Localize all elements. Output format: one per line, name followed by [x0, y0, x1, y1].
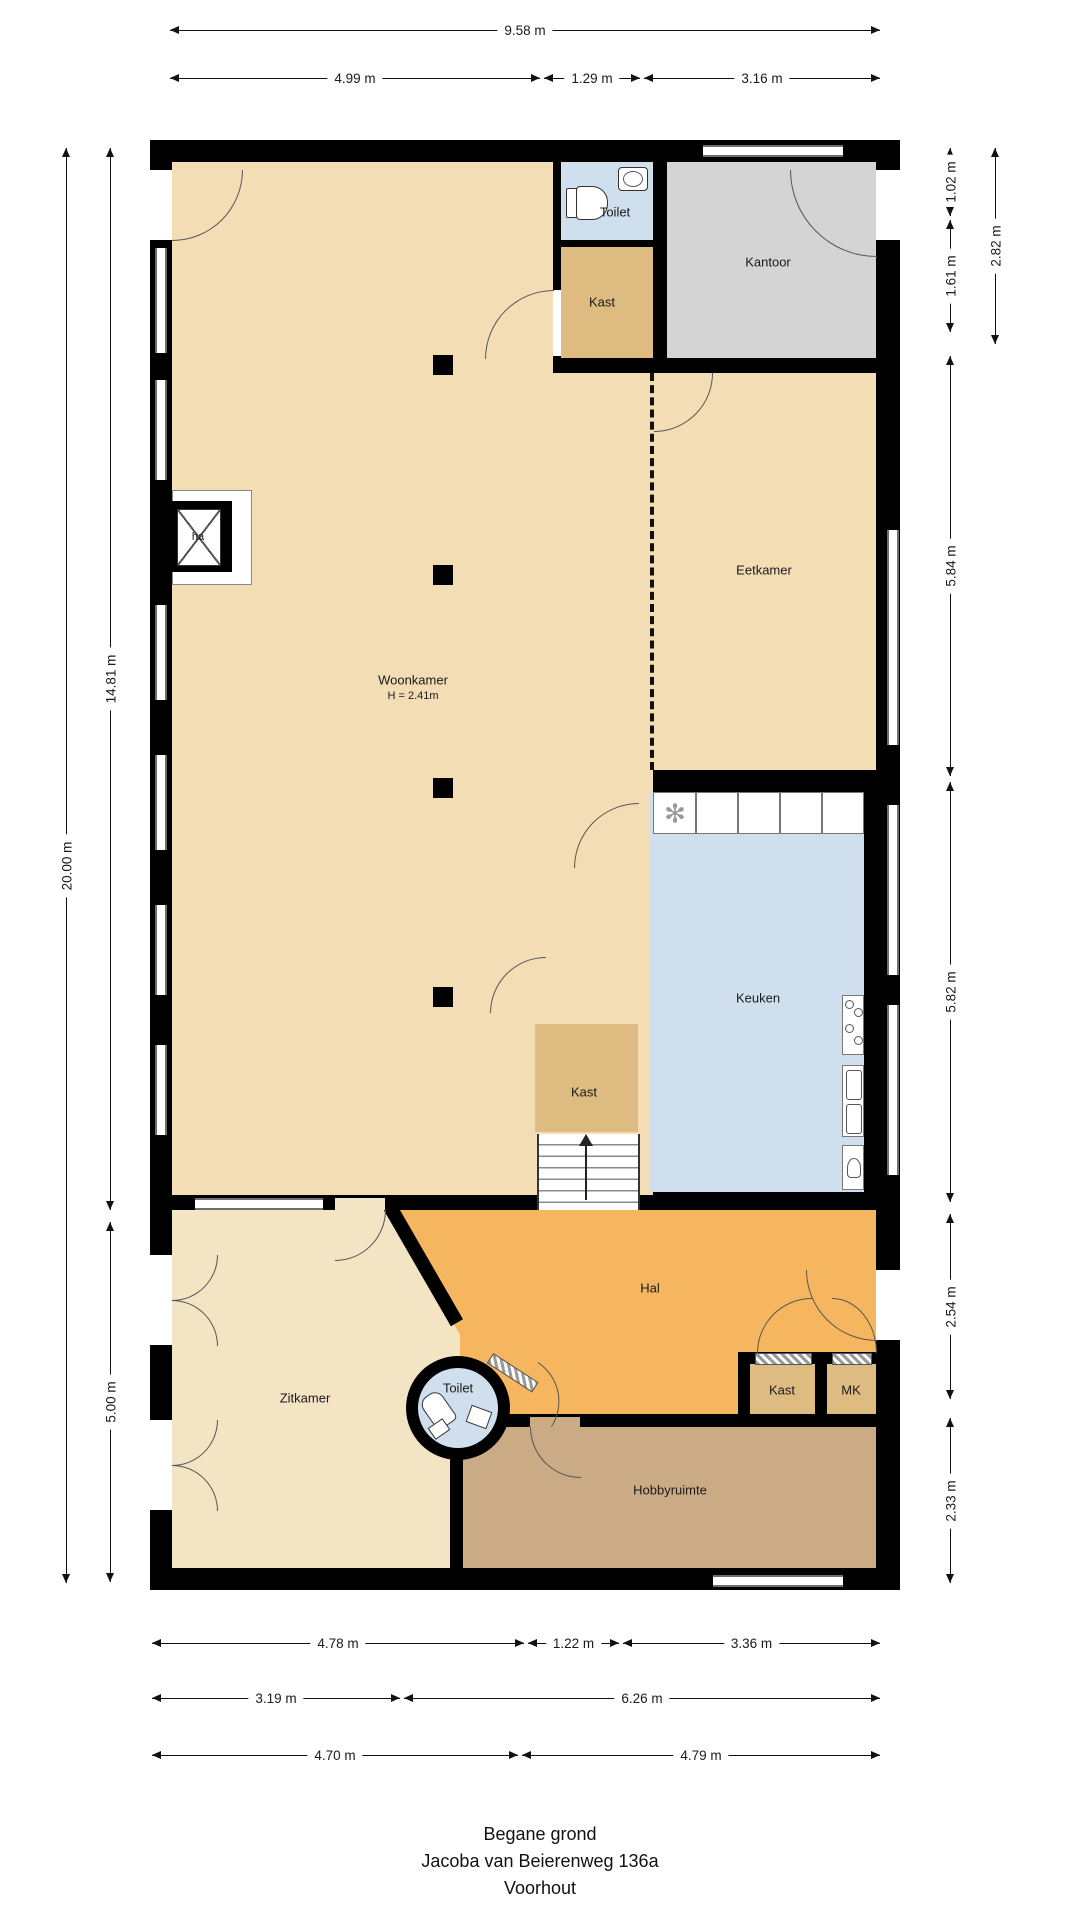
sink-basin-2: [846, 1104, 862, 1134]
dim-top-seg-1-label: 4.99 m: [327, 71, 382, 86]
dim-bottom3-seg-1-label: 4.70 m: [307, 1748, 362, 1763]
dim-right-seg-5-label: 2.54 m: [944, 1279, 959, 1334]
window-right-keuken-2: [887, 1005, 899, 1175]
dim-right-seg-1: 1.02 m: [950, 148, 951, 216]
stairs-direction-line: [585, 1142, 587, 1200]
door-gap-topleft: [150, 170, 172, 240]
window-right-eetkamer: [887, 530, 899, 745]
dim-top-total: 9.58 m: [170, 30, 880, 31]
sink-basin-1: [846, 1070, 862, 1100]
hob-burner-2: [854, 1008, 863, 1017]
floorplan: ha ✻: [150, 140, 900, 1590]
dim-bottom1-seg-1-label: 4.78 m: [310, 1636, 365, 1651]
stairs-up-arrow-icon: [579, 1134, 593, 1146]
dim-right-seg-4-label: 5.82 m: [944, 964, 959, 1019]
fireplace-label: ha: [192, 531, 204, 543]
window-left-4: [155, 755, 167, 850]
dim-bottom1-seg-3: 3.36 m: [623, 1643, 880, 1644]
label-mk: MK: [841, 1383, 861, 1398]
window-left-2: [155, 380, 167, 480]
dim-bottom1-seg-2-label: 1.22 m: [546, 1636, 601, 1651]
counter-cell-5: [822, 792, 864, 834]
label-zitkamer: Zitkamer: [280, 1391, 331, 1406]
window-left-1: [155, 248, 167, 353]
door-gap-kast-midden: [545, 1012, 595, 1024]
door-gap-zit-left-1: [150, 1255, 172, 1345]
label-keuken: Keuken: [736, 991, 780, 1006]
label-kast-boven: Kast: [589, 295, 615, 310]
dim-top-seg-3: 3.16 m: [644, 78, 880, 79]
kitchen-sink: [842, 1065, 864, 1137]
door-gap-zitkamer: [335, 1198, 385, 1210]
dim-bottom1-seg-3-label: 3.36 m: [724, 1636, 779, 1651]
opening-mk: [832, 1353, 872, 1365]
label-toilet-rond: Toilet: [443, 1381, 473, 1396]
room-kast-midden: [535, 1024, 638, 1132]
window-hobby-bottom: [713, 1575, 843, 1587]
dim-bottom1-seg-2: 1.22 m: [528, 1643, 619, 1644]
dim-right-seg-1-label: 1.02 m: [944, 154, 959, 209]
opening-kast-hal: [755, 1353, 812, 1365]
dim-right-seg-3-label: 5.84 m: [944, 538, 959, 593]
dim-right-seg-6-label: 2.33 m: [944, 1473, 959, 1528]
door-gap-kast-boven: [553, 290, 561, 356]
dim-left-outer-label: 20.00 m: [60, 834, 75, 897]
label-kantoor: Kantoor: [745, 255, 791, 270]
dim-left-lower-label: 5.00 m: [104, 1374, 119, 1429]
dim-left-outer: 20.00 m: [66, 148, 67, 1583]
dim-top-total-label: 9.58 m: [497, 23, 552, 38]
dim-top-seg-2-label: 1.29 m: [564, 71, 619, 86]
window-left-3: [155, 605, 167, 700]
dim-top-seg-3-label: 3.16 m: [734, 71, 789, 86]
window-zitkamer-top: [195, 1198, 323, 1210]
dim-left-upper: 14.81 m: [110, 148, 111, 1210]
toilet-boven-sink-basin: [623, 171, 643, 187]
label-hal: Hal: [640, 1281, 660, 1296]
dim-right-seg-2-label: 1.61 m: [944, 248, 959, 303]
dim-bottom2-seg-1-label: 3.19 m: [248, 1691, 303, 1706]
label-woonkamer: Woonkamer: [378, 673, 448, 688]
dim-left-upper-label: 14.81 m: [104, 648, 119, 711]
dim-right-seg-6: 2.33 m: [950, 1418, 951, 1583]
label-kast-hal: Kast: [769, 1383, 795, 1398]
hob-burner-1: [845, 1000, 854, 1009]
appliance-detail: [847, 1158, 861, 1178]
dim-right-outer-upper-label: 2.82 m: [989, 218, 1004, 273]
door-gap-hal-front: [876, 1270, 900, 1340]
plan-subtitle-address: Jacoba van Beierenweg 136a: [0, 1851, 1080, 1872]
dim-bottom1-seg-1: 4.78 m: [152, 1643, 524, 1644]
kitchen-appliance: [842, 1145, 864, 1190]
dim-bottom3-seg-2-label: 4.79 m: [673, 1748, 728, 1763]
room-hobbyruimte: [463, 1427, 876, 1568]
dim-bottom2-seg-1: 3.19 m: [152, 1698, 400, 1699]
plan-subtitle-city: Voorhout: [0, 1878, 1080, 1899]
window-left-5: [155, 905, 167, 995]
dashed-divider: [650, 373, 654, 770]
window-right-keuken-1: [887, 805, 899, 975]
door-gap-keuken: [638, 803, 650, 865]
hob-burner-3: [845, 1024, 854, 1033]
dim-left-lower: 5.00 m: [110, 1222, 111, 1582]
dim-right-seg-4: 5.82 m: [950, 782, 951, 1202]
counter-cell-2: [696, 792, 738, 834]
label-eetkamer: Eetkamer: [736, 563, 792, 578]
label-toilet-boven: Toilet: [600, 205, 630, 220]
dim-bottom3-seg-1: 4.70 m: [152, 1755, 518, 1756]
column-4: [433, 987, 453, 1007]
window-kantoor-top: [703, 145, 843, 157]
counter-cell-4: [780, 792, 822, 834]
dim-bottom3-seg-2: 4.79 m: [522, 1755, 880, 1756]
window-left-6: [155, 1045, 167, 1135]
dim-bottom2-seg-2-label: 6.26 m: [614, 1691, 669, 1706]
counter-cell-hood: ✻: [653, 792, 696, 834]
dim-right-outer-upper: 2.82 m: [995, 148, 996, 344]
dim-right-seg-2: 1.61 m: [950, 220, 951, 332]
dim-top-seg-1: 4.99 m: [170, 78, 540, 79]
plan-title: Begane grond: [0, 1824, 1080, 1845]
label-kast-midden: Kast: [571, 1085, 597, 1100]
extractor-fan-icon: ✻: [664, 799, 686, 830]
column-1: [433, 355, 453, 375]
dim-top-seg-2: 1.29 m: [544, 78, 640, 79]
door-gap-zit-left-2: [150, 1420, 172, 1510]
column-2: [433, 565, 453, 585]
door-gap-kantoor: [876, 170, 900, 240]
dim-right-seg-3: 5.84 m: [950, 356, 951, 776]
floorplan-page: ha ✻: [0, 0, 1080, 1920]
counter-cell-3: [738, 792, 780, 834]
dim-right-seg-5: 2.54 m: [950, 1214, 951, 1399]
dim-bottom2-seg-2: 6.26 m: [404, 1698, 880, 1699]
column-3: [433, 778, 453, 798]
room-woonkamer: [172, 162, 553, 1195]
label-hobbyruimte: Hobbyruimte: [633, 1483, 707, 1498]
hob: [842, 995, 864, 1055]
label-woonkamer-height: H = 2.41m: [387, 690, 438, 702]
hob-burner-4: [854, 1036, 863, 1045]
